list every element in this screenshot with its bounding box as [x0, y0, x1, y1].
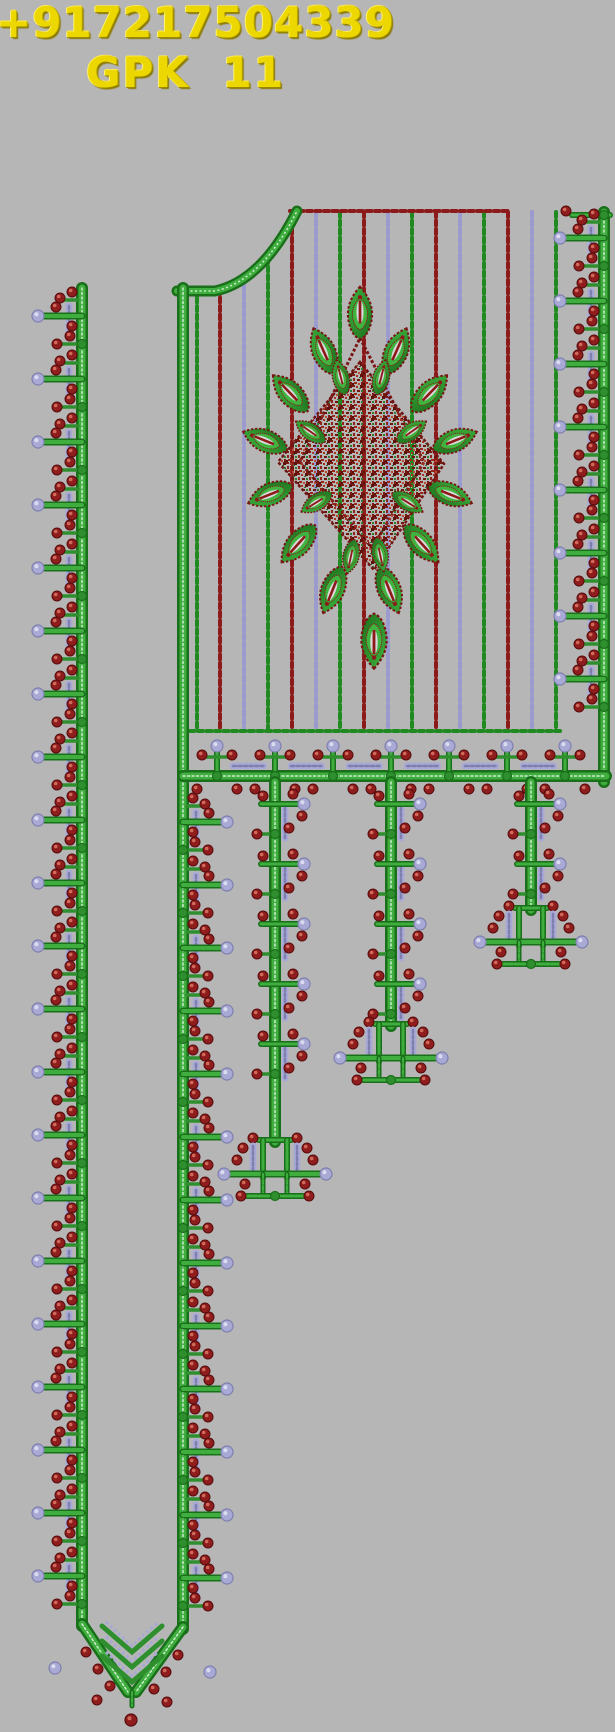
diamond-motif: [239, 287, 481, 669]
left-border-column: [32, 287, 87, 1626]
embroidery-preview: +917217504339 GPK 11: [0, 0, 615, 1732]
tassel: [252, 782, 310, 1142]
right-border-column: [554, 206, 610, 782]
neckline-curve: [177, 211, 297, 291]
tassel: [368, 782, 426, 1026]
design-code-text: GPK 11: [86, 48, 285, 97]
v-point: [49, 1622, 216, 1726]
phone-number-text: +917217504339: [0, 0, 395, 47]
embroidery-design-canvas: [0, 0, 615, 1732]
tassel: [508, 782, 566, 910]
inner-strip: [179, 288, 234, 1629]
